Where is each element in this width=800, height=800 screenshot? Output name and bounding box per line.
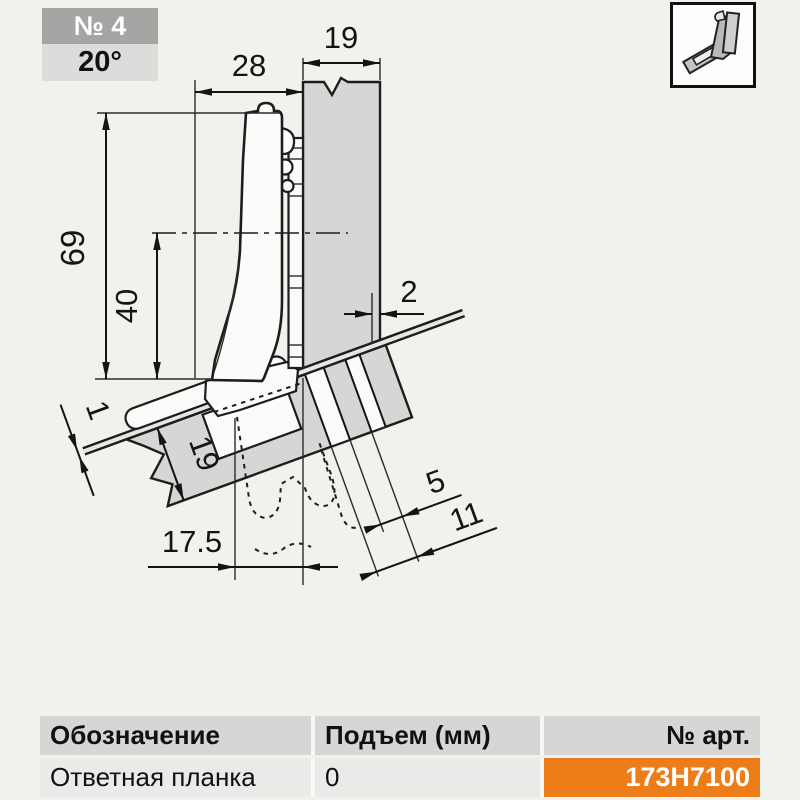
svg-text:19: 19: [324, 20, 358, 55]
lift-value: 0: [315, 758, 540, 797]
spec-table-row: Ответная планка 0 173H7100: [40, 758, 760, 797]
svg-text:69: 69: [54, 230, 91, 267]
variant-badge: № 4 20°: [42, 8, 158, 81]
hinge-icon: [673, 5, 753, 85]
hinge-arm: [212, 103, 282, 381]
svg-text:11: 11: [445, 494, 487, 538]
dim-hole-offset-large: 11: [347, 491, 498, 581]
designation-value: Ответная планка: [40, 758, 311, 797]
svg-text:40: 40: [109, 289, 144, 323]
header-art-no: № арт.: [544, 716, 760, 755]
variant-number: № 4: [42, 8, 158, 44]
header-designation: Обозначение: [40, 716, 311, 755]
header-lift: Подъем (мм): [315, 716, 540, 755]
spec-table: Обозначение Подъем (мм) № арт. Ответная …: [40, 716, 760, 797]
spec-table-header: Обозначение Подъем (мм) № арт.: [40, 716, 760, 755]
svg-text:17.5: 17.5: [162, 524, 222, 559]
svg-text:28: 28: [232, 48, 266, 83]
hinge-spec-sheet: 19 28 69 40: [0, 0, 800, 800]
opening-angle: 20°: [42, 44, 158, 81]
svg-text:5: 5: [421, 462, 449, 501]
svg-text:1: 1: [79, 396, 118, 424]
art-no-badge[interactable]: 173H7100: [544, 758, 760, 797]
cabinet-side-panel: [303, 78, 380, 374]
product-thumbnail[interactable]: [670, 2, 756, 88]
dim-side-panel-thickness: 19: [303, 20, 380, 80]
hinge-technical-drawing: 19 28 69 40: [0, 0, 800, 710]
svg-text:2: 2: [400, 274, 417, 309]
dim-hole-offset-small: 5: [351, 458, 462, 533]
